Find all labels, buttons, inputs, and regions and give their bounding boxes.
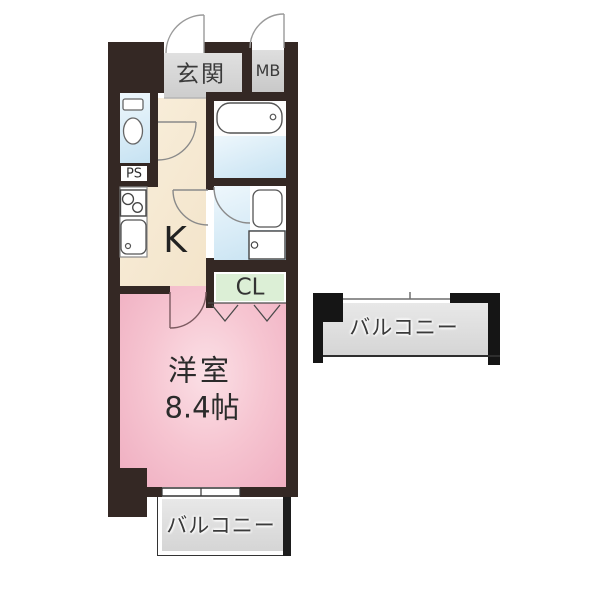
meter-box-door-icon bbox=[250, 14, 284, 48]
balcony-railing bbox=[343, 292, 450, 299]
linework-layer bbox=[0, 0, 600, 600]
closet-folding-door-icon bbox=[208, 303, 286, 321]
closet-label: CL bbox=[236, 277, 265, 300]
window bbox=[162, 488, 240, 497]
room-door-icon bbox=[170, 292, 206, 328]
meter-box-label: MB bbox=[256, 63, 281, 79]
stove-icon bbox=[121, 190, 147, 216]
entrance-label: 玄関 bbox=[176, 64, 226, 87]
toilet-icon bbox=[123, 99, 143, 144]
washbasin-icon bbox=[253, 190, 282, 227]
kitchen-label: K bbox=[163, 223, 187, 259]
balcony-bottom-label: バルコニー bbox=[166, 516, 276, 537]
entrance-door-icon bbox=[166, 15, 204, 53]
room-size-label: 8.4帖 bbox=[164, 394, 239, 423]
room-name-label: 洋室 bbox=[168, 357, 232, 386]
balcony-right-label: バルコニー bbox=[349, 318, 459, 339]
kitchen-counter bbox=[120, 187, 147, 257]
bathtub-icon bbox=[217, 103, 282, 133]
floor-plan: 玄関 MB PS K CL 洋室 8.4帖 バルコニー バルコニー bbox=[0, 0, 600, 600]
pipe-space-label: PS bbox=[126, 168, 142, 181]
bathroom-door-icon bbox=[214, 187, 250, 223]
washing-machine-icon bbox=[249, 231, 285, 259]
toilet-door-icon bbox=[158, 122, 196, 160]
sink-icon bbox=[121, 220, 146, 254]
